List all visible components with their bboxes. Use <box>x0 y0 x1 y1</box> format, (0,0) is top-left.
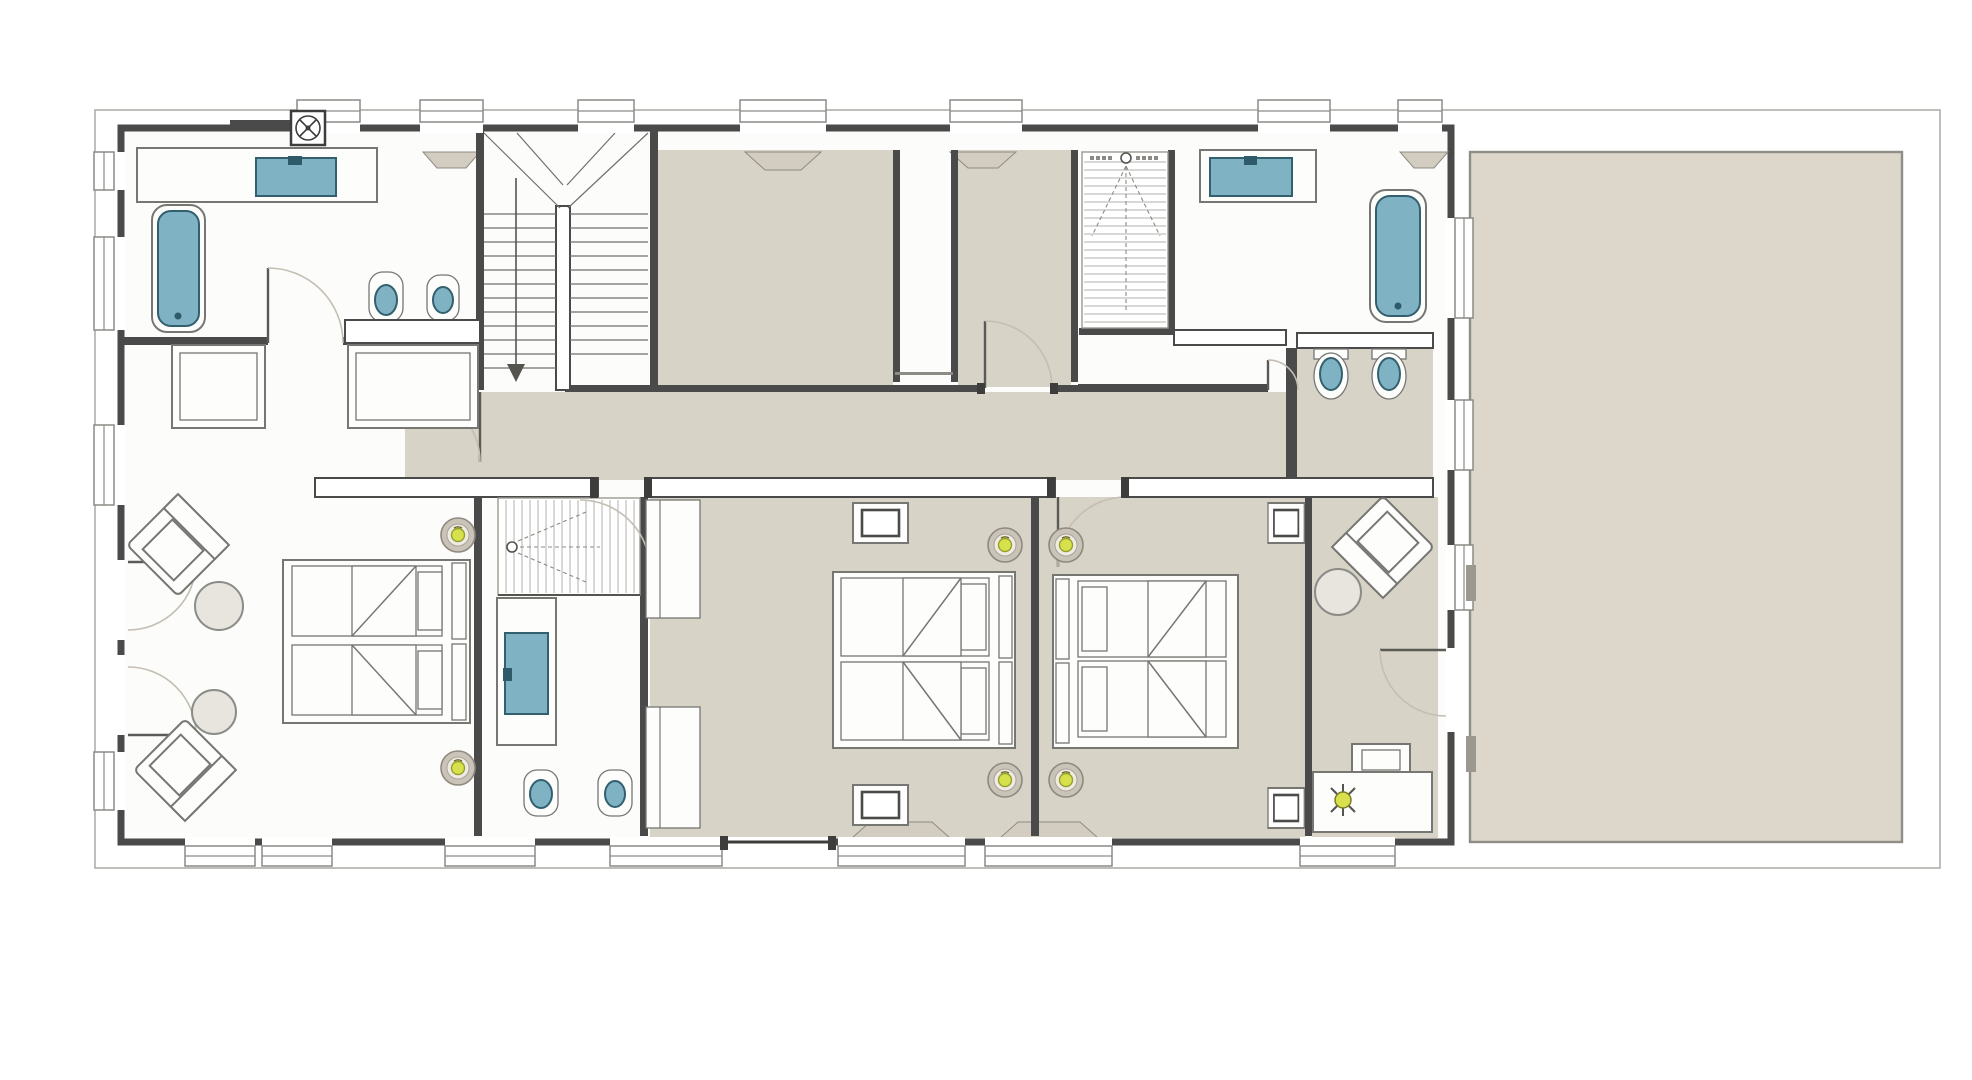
ceiling-light-icon <box>988 763 1022 797</box>
ceiling-light-icon <box>441 518 475 552</box>
bathtub-icon <box>158 211 199 326</box>
bedside-table <box>1268 503 1304 543</box>
wc-icon <box>1320 358 1342 390</box>
vanity-west <box>137 148 377 202</box>
floor-plan-page <box>0 0 1972 1080</box>
bedside-table <box>853 503 908 543</box>
walk-in-shower-middle <box>498 498 640 595</box>
vanity-middle <box>497 598 556 745</box>
desk <box>1313 772 1432 832</box>
shower-head-icon <box>1121 153 1131 163</box>
bedside-table <box>1268 788 1304 828</box>
ceiling-light-icon <box>441 751 475 785</box>
dressing-room-b <box>958 150 1071 387</box>
bathtub-west <box>152 205 205 332</box>
closet <box>646 707 700 828</box>
bidet-icon <box>1378 358 1400 390</box>
bidet-icon <box>433 287 453 313</box>
bed-middle-right <box>1053 575 1238 748</box>
wc-icon <box>530 780 552 808</box>
round-table <box>195 582 243 630</box>
round-table <box>192 690 236 734</box>
bathtub-icon <box>1376 196 1420 316</box>
ceiling-light-icon <box>1049 528 1083 562</box>
ceiling-light-icon <box>988 528 1022 562</box>
bed-west <box>283 560 470 723</box>
floor-plan-canvas <box>0 0 1972 1080</box>
bathtub-east <box>1370 190 1426 322</box>
extractor-fan-icon <box>291 111 325 145</box>
wc-icon <box>375 285 397 315</box>
ceiling-light-icon <box>1049 763 1083 797</box>
terrace <box>1470 152 1902 842</box>
dressing-room-a <box>658 150 893 387</box>
shower-head-icon <box>507 542 517 552</box>
walk-in-shower-east <box>1082 152 1168 328</box>
vanity-east <box>1200 150 1316 202</box>
round-table <box>1315 569 1361 615</box>
hallway <box>405 392 1290 480</box>
bedside-table <box>853 785 908 825</box>
bidet-icon <box>605 781 625 807</box>
closet <box>646 500 700 618</box>
bed-middle-left <box>833 572 1015 748</box>
